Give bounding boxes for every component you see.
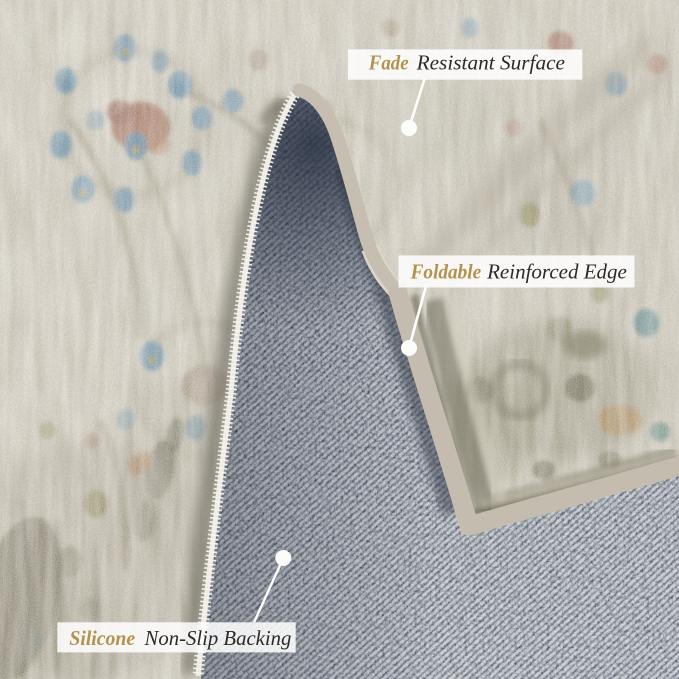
svg-text:FadeResistant Surface: FadeResistant Surface	[368, 50, 565, 74]
svg-text:SiliconeNon-Slip Backing: SiliconeNon-Slip Backing	[69, 626, 291, 650]
svg-text:FoldableReinforced Edge: FoldableReinforced Edge	[410, 260, 627, 284]
